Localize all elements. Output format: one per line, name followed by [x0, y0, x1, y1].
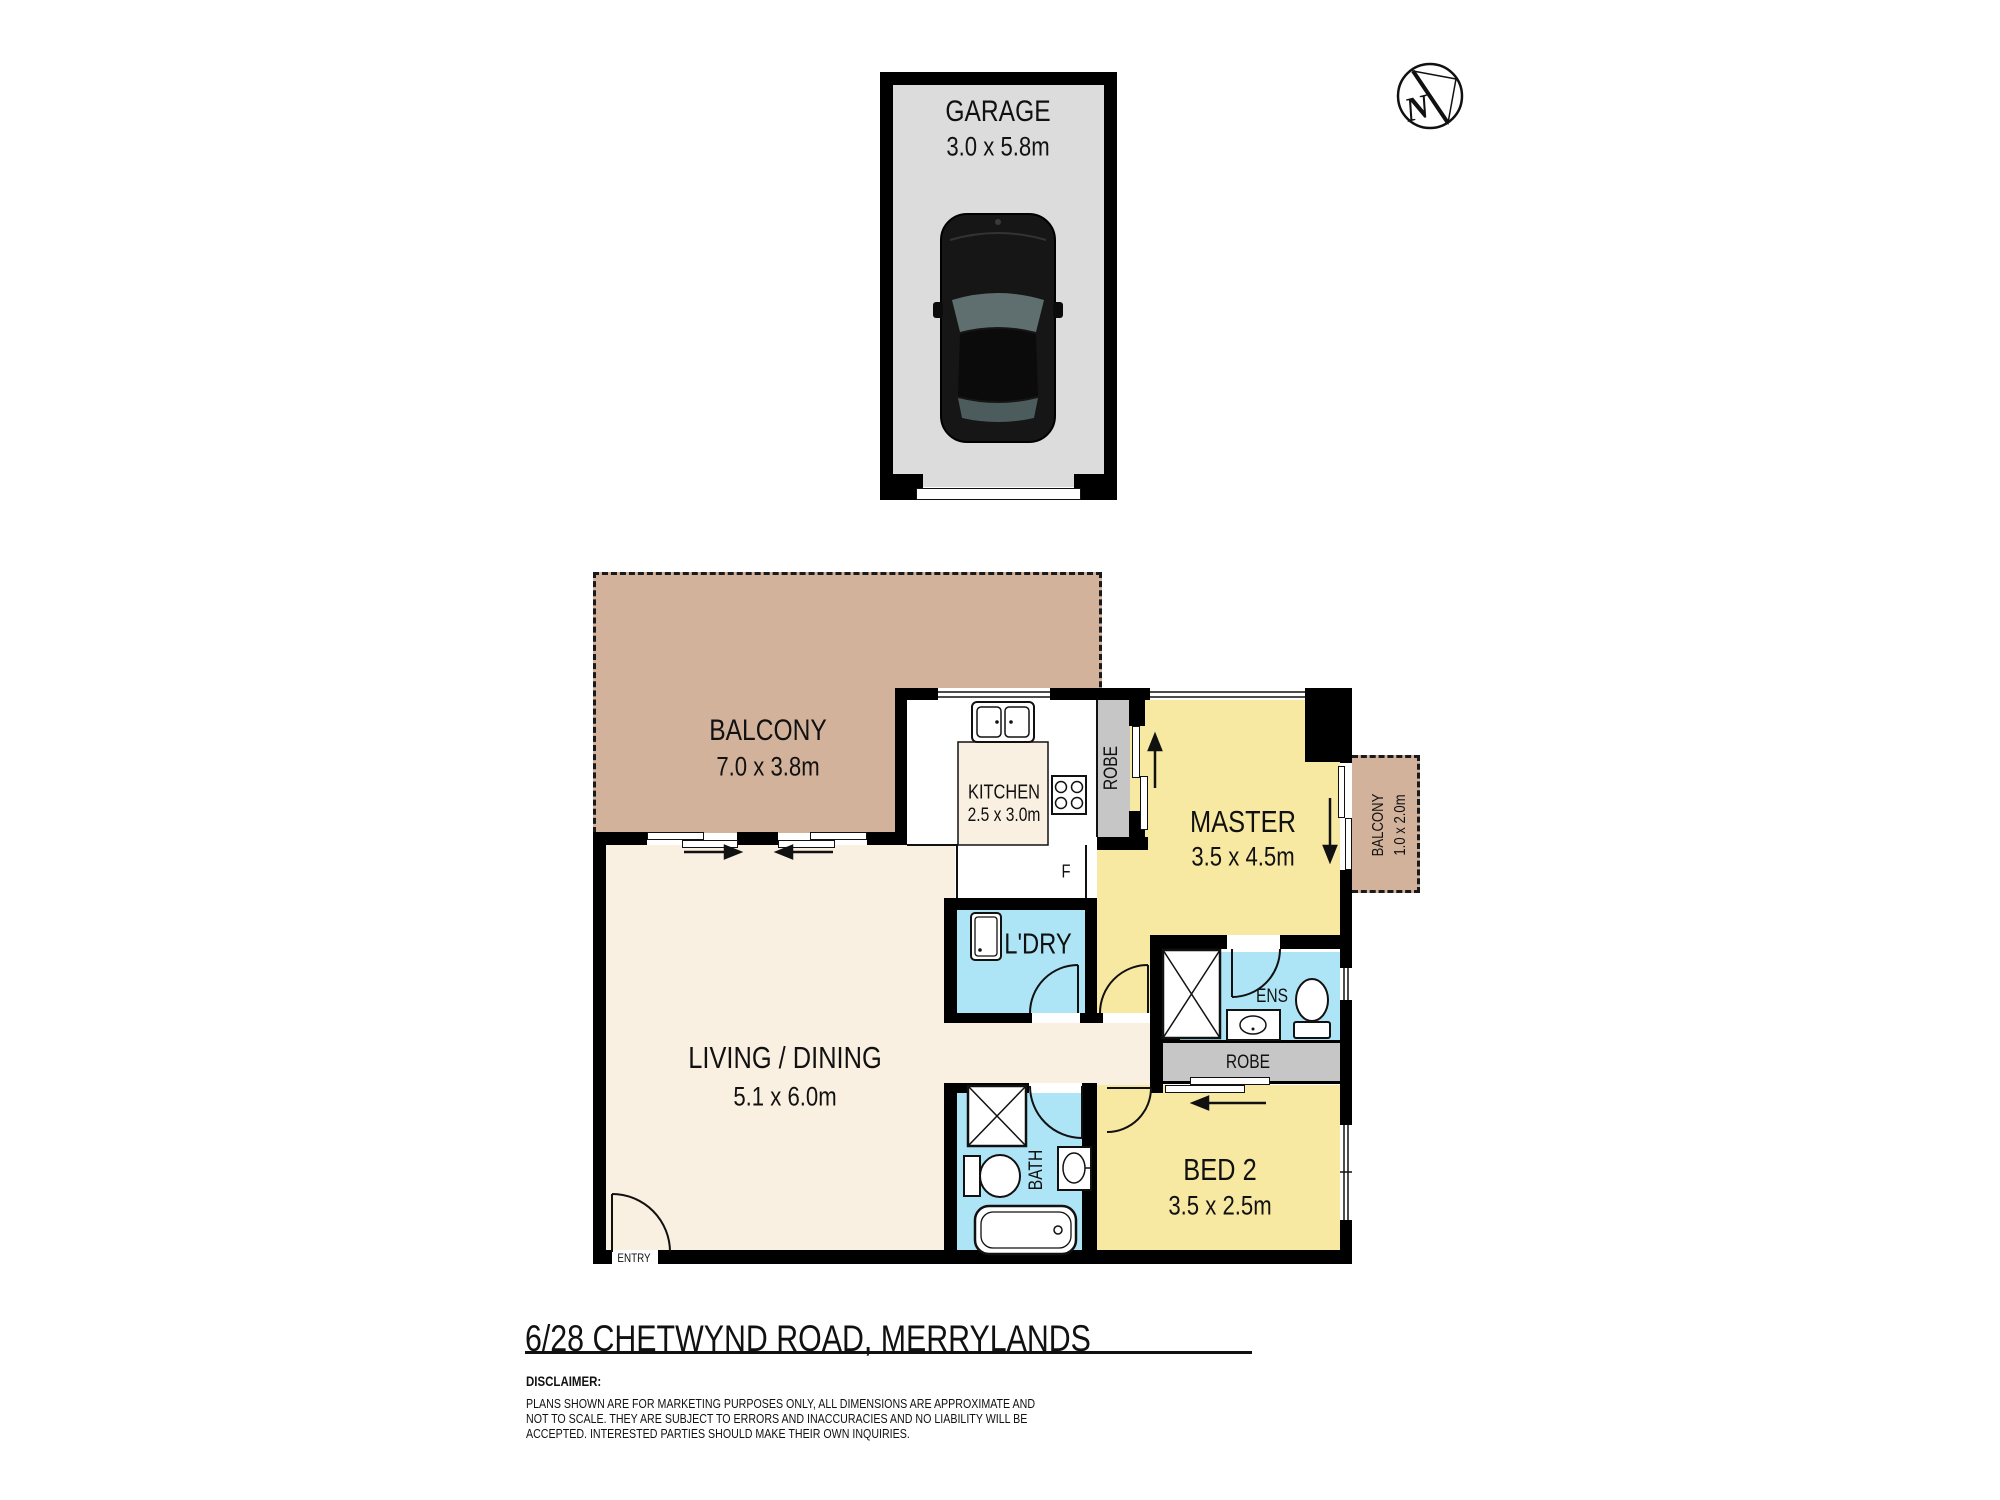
wall-ldry-master [1085, 898, 1097, 1013]
window-master-top [1150, 688, 1305, 700]
robe-master-label: ROBE [1101, 746, 1123, 790]
garage-wall-bottom-left [880, 487, 918, 500]
wall-ldry-left [944, 898, 957, 1013]
kitchen-label: KITCHEN [968, 782, 1040, 805]
slider-robe-bed2-a [1190, 1077, 1270, 1085]
laundry-label: L'DRY [1004, 929, 1072, 962]
balcony-main-label: BALCONY [709, 714, 827, 748]
address-underline [525, 1351, 1252, 1354]
room-bath [957, 1085, 1082, 1250]
wall-bath-left [944, 1083, 957, 1250]
robe1-bottom [1097, 837, 1148, 850]
slider-balcony-left-a [647, 832, 704, 840]
slider-balcony-right-a [810, 832, 867, 840]
wall-living-left [593, 832, 606, 1262]
room-laundry [957, 910, 1085, 1013]
bed2-label: BED 2 [1183, 1152, 1256, 1188]
wall-top-corner [1305, 688, 1352, 762]
compass-north-icon: N [1398, 64, 1462, 130]
disclaimer-line-3: ACCEPTED. INTERESTED PARTIES SHOULD MAKE… [526, 1426, 910, 1441]
disclaimer-line-2: NOT TO SCALE. THEY ARE SUBJECT TO ERRORS… [526, 1411, 1027, 1426]
disclaimer-title: DISCLAIMER: [526, 1373, 601, 1389]
balcony-master-dims: 1.0 x 2.0m [1392, 794, 1410, 855]
compass-n-label: N [1400, 87, 1435, 129]
slider-balcony-right-b [778, 840, 835, 848]
door-gap-ens [1227, 935, 1280, 949]
wall-hall-top-2 [1080, 1013, 1103, 1023]
wall-kitchen-left [895, 700, 907, 832]
window-bed2-right [1340, 1125, 1352, 1220]
wall-robe2-left [1150, 1043, 1163, 1093]
disclaimer-line-1: PLANS SHOWN ARE FOR MARKETING PURPOSES O… [526, 1396, 1035, 1411]
robe1-piece-top [1129, 700, 1145, 726]
living-dims: 5.1 x 6.0m [733, 1082, 836, 1113]
slider-robe-bed2-b [1165, 1085, 1245, 1093]
wall-hall-corner [1150, 1013, 1180, 1043]
kitchen-dims: 2.5 x 3.0m [968, 805, 1041, 827]
balcony-main-dims: 7.0 x 3.8m [716, 752, 819, 783]
room-kitchen-floor-2 [957, 845, 1097, 900]
robe2-line-top [1163, 1040, 1340, 1043]
wall-ldry-top [944, 898, 1097, 910]
garage-door [916, 488, 1081, 500]
door-gap-bath [1029, 1083, 1082, 1093]
bed2-dims: 3.5 x 2.5m [1168, 1191, 1271, 1222]
slider-master-balc-b [1345, 818, 1352, 870]
window-ens-right [1340, 968, 1352, 1000]
ensuite-label: ENS [1256, 986, 1288, 1008]
wall-balcony-seg3 [867, 832, 907, 845]
wall-hall-top-1 [944, 1013, 1032, 1023]
robe-bed2-label: ROBE [1226, 1052, 1270, 1074]
garage-wall-step-right [1074, 474, 1104, 488]
master-dims: 3.5 x 4.5m [1191, 842, 1294, 873]
fridge-label: F [1061, 862, 1070, 883]
slider-master-balc-a [1338, 766, 1345, 818]
garage-wall-bottom-right [1079, 487, 1117, 500]
balcony-master-label: BALCONY [1370, 794, 1388, 857]
garage-wall-step-left [893, 474, 923, 488]
window-kitchen-top [938, 688, 1050, 700]
garage-dims: 3.0 x 5.8m [946, 132, 1049, 163]
floorplan-page: GARAGE 3.0 x 5.8m BALCONY 7.0 x 3.8m [0, 0, 2000, 1500]
slider-robe-master-b [1140, 776, 1148, 830]
wall-balcony-seg2 [737, 832, 778, 845]
wall-bath-bed2 [1082, 1083, 1097, 1250]
entry-label: ENTRY [617, 1251, 650, 1265]
garage-label: GARAGE [945, 95, 1050, 129]
room-master-3 [1097, 935, 1150, 1013]
wall-bottom [593, 1250, 1352, 1264]
bath-label: BATH [1026, 1150, 1048, 1190]
room-ensuite [1163, 952, 1340, 1043]
living-label: LIVING / DINING [688, 1040, 882, 1076]
hallway [944, 1023, 1150, 1088]
master-label: MASTER [1190, 804, 1296, 840]
slider-balcony-left-b [682, 840, 738, 848]
slider-robe-master-a [1132, 726, 1140, 778]
